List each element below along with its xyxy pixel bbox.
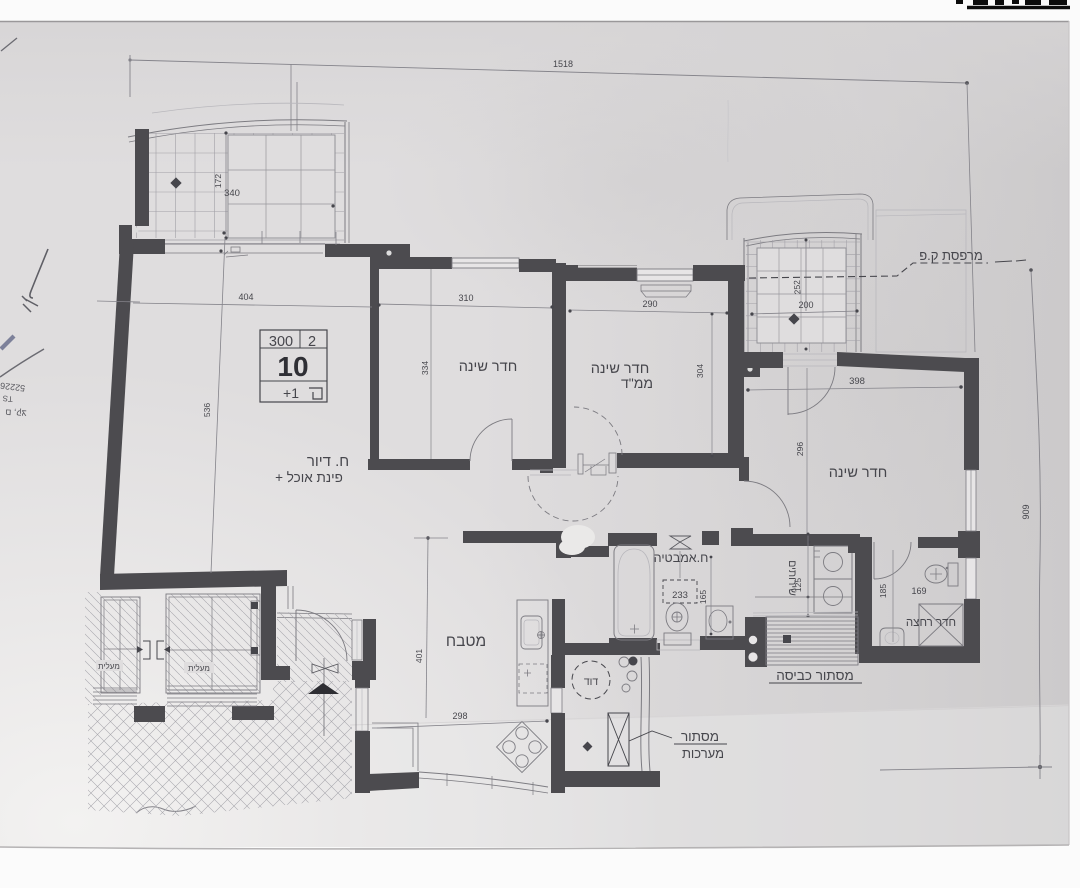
svg-text:חדר שינה: חדר שינה [459, 359, 518, 375]
svg-text:300: 300 [269, 334, 293, 350]
svg-text:חדר שינה: חדר שינה [829, 465, 888, 481]
svg-text:252: 252 [792, 280, 803, 295]
svg-text:334: 334 [420, 361, 430, 375]
svg-text:290: 290 [642, 299, 657, 309]
svg-text:165: 165 [698, 590, 708, 604]
svg-text:200: 200 [798, 300, 813, 310]
svg-text:מרפסת ק.פ: מרפסת ק.פ [919, 248, 983, 263]
svg-text:TS: TS [2, 394, 13, 404]
svg-text:401: 401 [414, 649, 424, 663]
svg-text:310: 310 [458, 293, 473, 303]
svg-text:398: 398 [849, 376, 865, 387]
svg-text:340: 340 [224, 188, 240, 199]
svg-text:מעלית: מעלית [98, 662, 120, 671]
svg-text:ם ,קצ: ם ,קצ [5, 407, 27, 418]
svg-text:125: 125 [793, 578, 803, 592]
svg-text:ח. דיור: ח. דיור [307, 453, 349, 470]
svg-text:ח.אמבטיה: ח.אמבטיה [654, 551, 709, 565]
svg-text:536: 536 [202, 403, 212, 417]
svg-text:מטבח: מטבח [446, 633, 486, 650]
svg-text:172: 172 [213, 174, 223, 188]
svg-text:233: 233 [672, 590, 688, 601]
svg-text:404: 404 [238, 292, 253, 302]
svg-text:169: 169 [911, 586, 926, 596]
svg-text:מסתור: מסתור [681, 729, 719, 744]
svg-text:מסתור כביסה: מסתור כביסה [776, 668, 853, 683]
svg-text:דוד: דוד [584, 676, 599, 688]
svg-text:909: 909 [1021, 504, 1031, 519]
svg-text:ממ"ד: ממ"ד [621, 375, 653, 391]
svg-text:296: 296 [795, 442, 805, 456]
svg-text:304: 304 [695, 364, 705, 378]
svg-text:+1: +1 [283, 385, 299, 401]
svg-text:+ פינת אוכל: + פינת אוכל [275, 470, 343, 485]
svg-text:חדר רחצה: חדר רחצה [906, 617, 956, 629]
svg-text:10: 10 [277, 351, 308, 382]
svg-text:מעלית: מעלית [188, 664, 210, 673]
svg-text:298: 298 [452, 711, 467, 721]
svg-text:1518: 1518 [553, 59, 573, 69]
svg-text:185: 185 [878, 584, 888, 598]
svg-text:מערכות: מערכות [682, 746, 724, 761]
svg-text:2: 2 [308, 334, 316, 350]
